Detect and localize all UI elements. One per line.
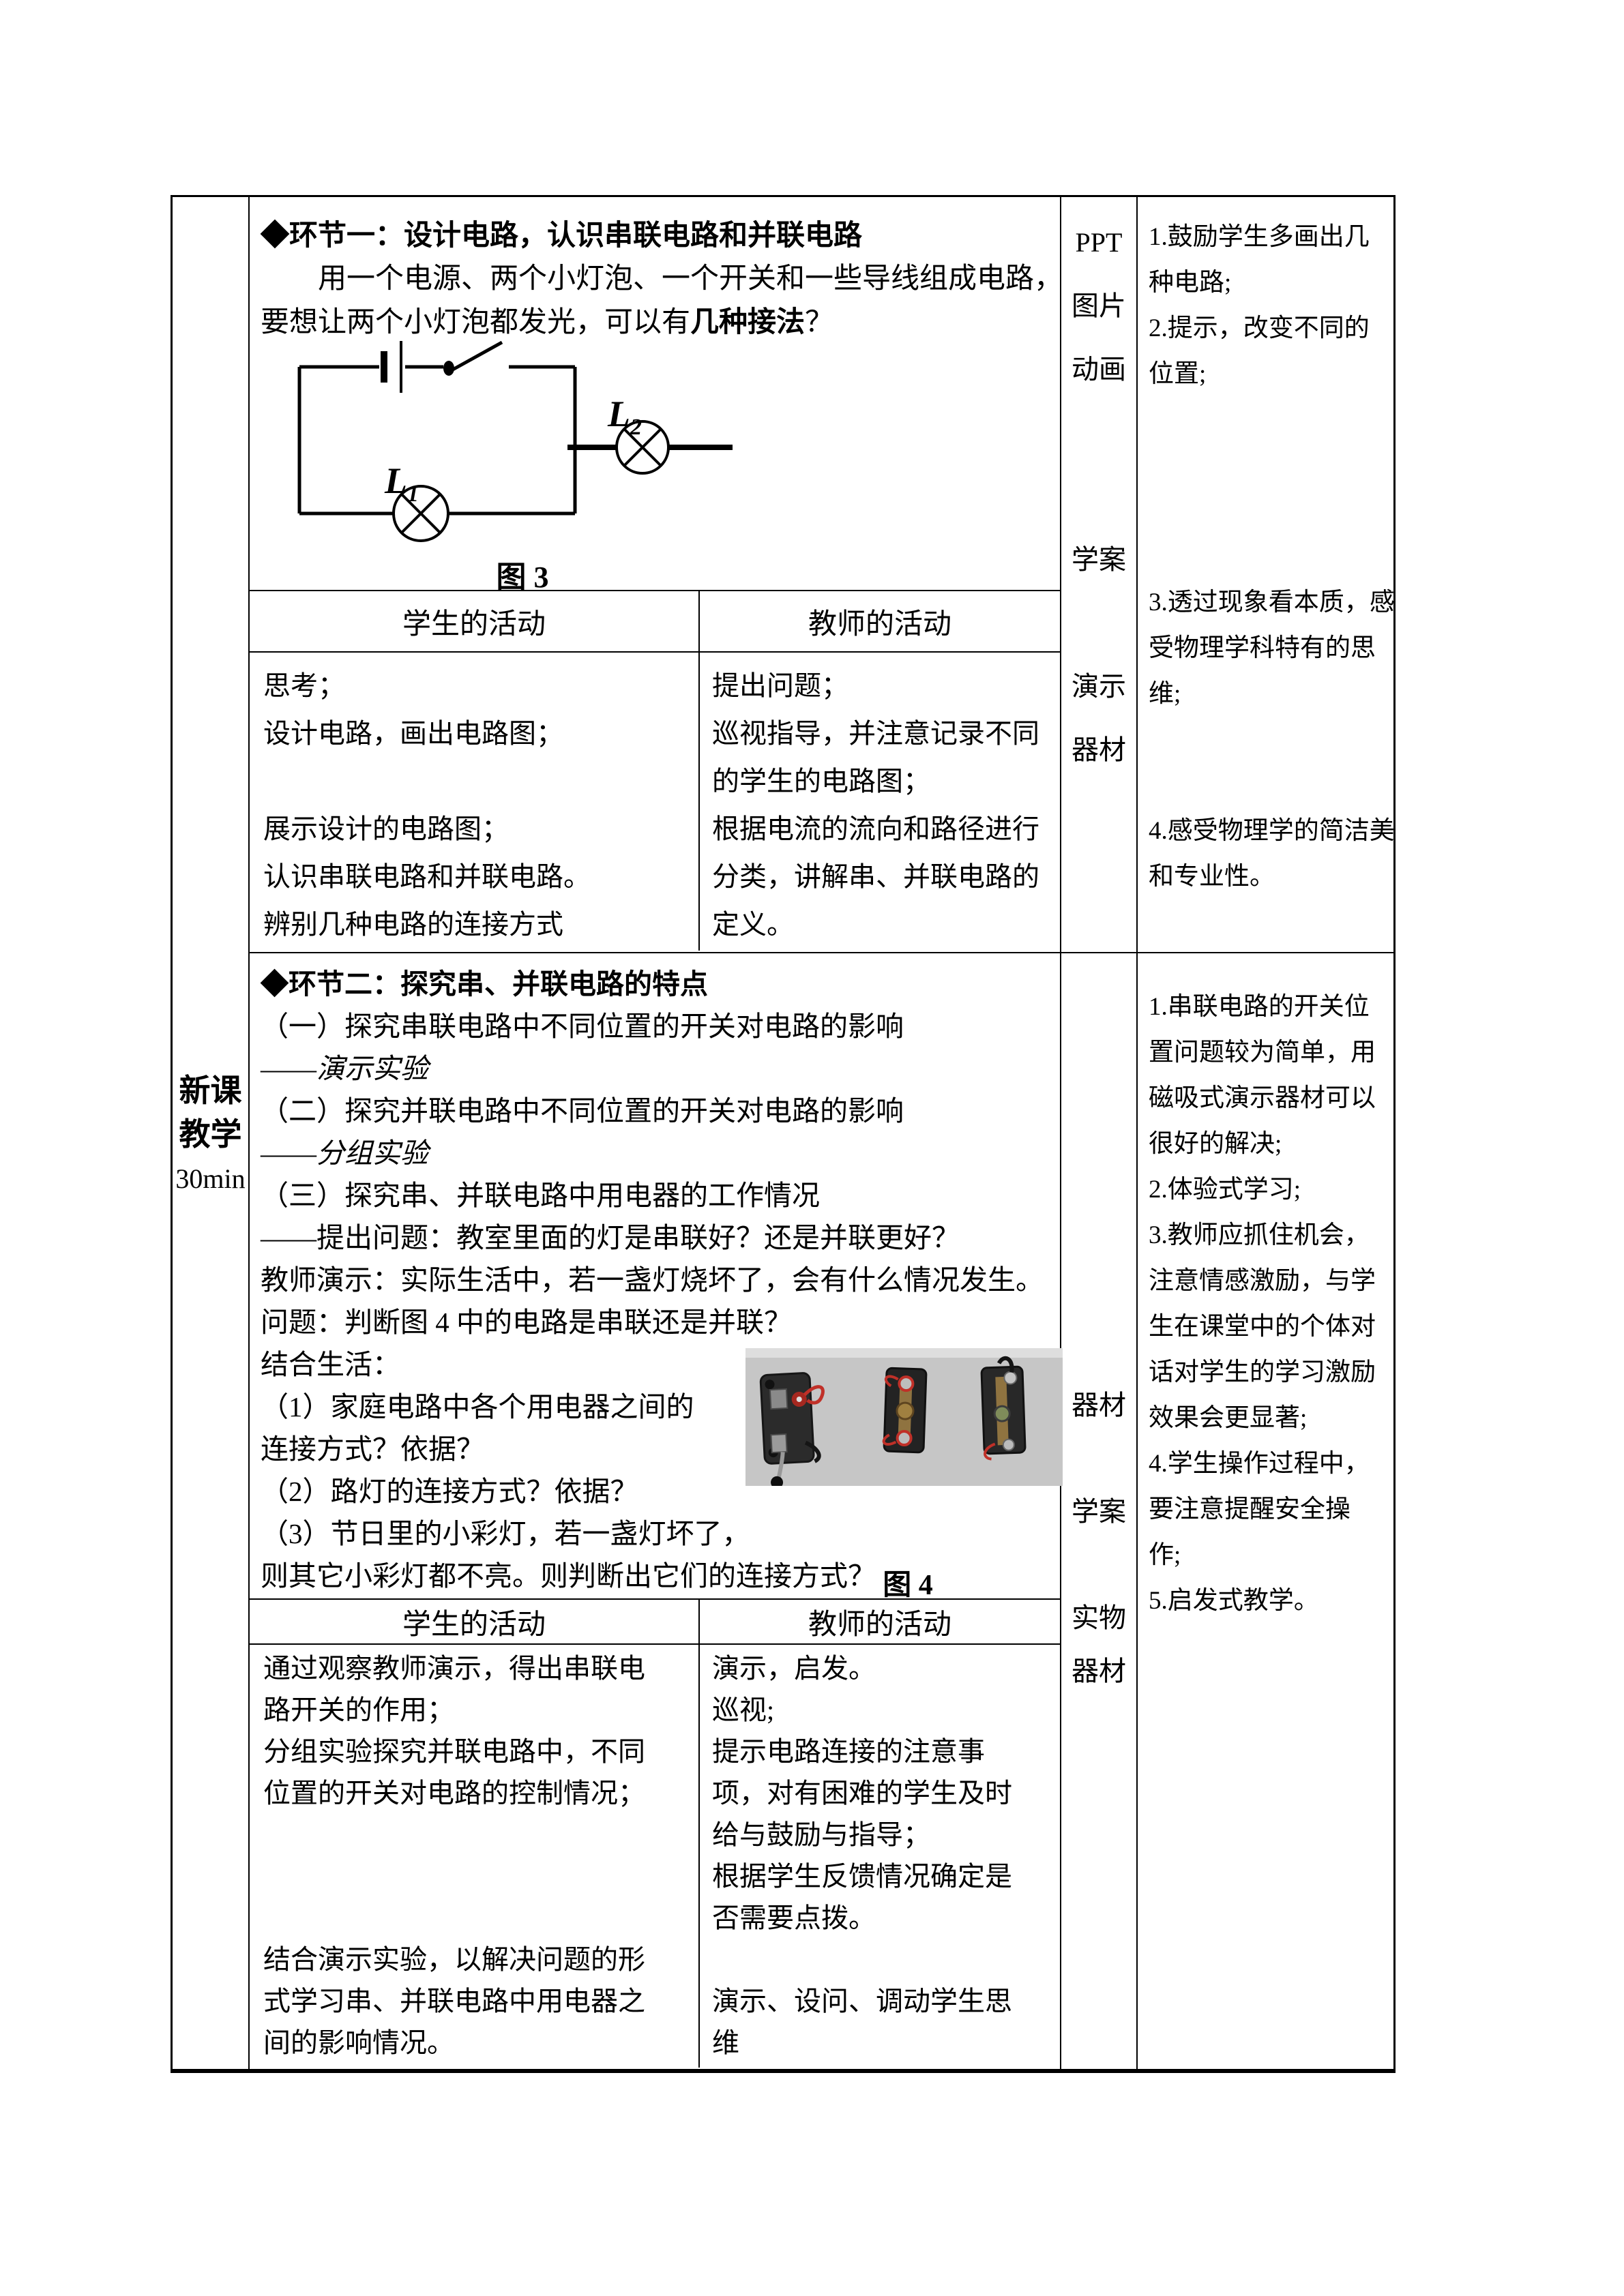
student-activities-cell: 思考；设计电路，画出电路图； 展示设计的电路图；认识串联电路和并联电路。辨别几种… (250, 653, 700, 951)
teacher-activity-line: 演示，启发。 (712, 1648, 1060, 1689)
comment-line: 2.提示，改变不同的 (1149, 305, 1393, 351)
student-activity-line (263, 758, 698, 805)
section2-content-line: ——提出问题：教室里面的灯是串联好？还是并联更好？ (261, 1217, 1044, 1259)
text-segment: （三）探究串、并联电路中用电器的工作情况 (261, 1180, 820, 1211)
teacher-activity-line: 项，对有困难的学生及时 (712, 1772, 1060, 1814)
text-segment: ——提出问题：教室里面的灯是串联好？还是并联更好？ (261, 1222, 960, 1253)
section2-content-lines: （一）探究串联电路中不同位置的开关对电路的影响——演示实验（二）探究并联电路中不… (261, 1005, 1044, 1597)
comment-line: 1.串联电路的开关位 (1149, 984, 1393, 1030)
comment-line: 话对学生的学习激励 (1149, 1350, 1393, 1395)
switch-photo-middle (883, 1368, 926, 1452)
text-segment: 问题：判断图 4 中的电路是串联还是并联？ (261, 1307, 792, 1338)
student-activities-header: 学生的活动 (250, 1600, 700, 1643)
media-label (1061, 953, 1136, 1007)
student-activity-line: 认识串联电路和并联电路。 (263, 853, 698, 901)
photo-top-light (745, 1348, 1063, 1358)
comment-line: 生在课堂中的个体对 (1149, 1304, 1393, 1350)
teacher-activity-line: 提示电路连接的注意事 (712, 1731, 1060, 1772)
comment-line: 置问题较为简单，用 (1149, 1030, 1393, 1075)
comment-line (1149, 717, 1393, 762)
text-segment: 演示实验 (316, 1053, 428, 1084)
section2-content-line: （一）探究串联电路中不同位置的开关对电路的影响 (261, 1005, 1044, 1047)
teacher-activity-line: 根据学生反馈情况确定是 (712, 1855, 1060, 1897)
comment-line: 3.透过现象看本质，感 (1149, 580, 1393, 625)
student-activities-cell: 通过观察教师演示，得出串联电路开关的作用；分组实验探究并联电路中，不同位置的开关… (250, 1645, 700, 2068)
teacher-activity-line: 的学生的电路图； (712, 758, 1060, 805)
student-activity-line: 思考； (263, 662, 698, 710)
media-label: 学案 (1061, 1485, 1136, 1538)
media-label (1061, 591, 1136, 655)
activities-body-row: 思考；设计电路，画出电路图； 展示设计的电路图；认识串联电路和并联电路。辨别几种… (250, 653, 1060, 951)
comment-line (1149, 443, 1393, 488)
media-label (1061, 1166, 1136, 1219)
comment-line: 受物理学科特有的思 (1149, 625, 1393, 671)
teacher-activities-cell: 提出问题；巡视指导，并注意记录不同的学生的电路图；根据电流的流向和路径进行分类，… (700, 653, 1060, 951)
text-segment: （二）探究并联电路中不同位置的开关对电路的影响 (261, 1095, 904, 1127)
comment-line: 磁吸式演示器材可以 (1149, 1075, 1393, 1121)
media-label: 图片 (1061, 274, 1136, 338)
comment-line (1149, 397, 1393, 443)
section1-paragraph: 用一个电源、两个小灯泡、一个开关和一些导线组成电路，要想让两个小灯泡都发光，可以… (261, 257, 1063, 344)
media-label: 实物 (1061, 1592, 1136, 1645)
media-label (1061, 1326, 1136, 1379)
section2-content-line: ——演示实验 (261, 1047, 1044, 1090)
section1-content: ◆环节一：设计电路，认识串联电路和并联电路 用一个电源、两个小灯泡、一个开关和一… (261, 213, 1063, 344)
media-label: 器材 (1061, 718, 1136, 781)
comment-line: 位置; (1149, 351, 1393, 397)
teacher-activity-line: 否需要点拨。 (712, 1897, 1060, 1939)
media-label: PPT (1061, 211, 1136, 274)
section1-activities-table: 学生的活动 教师的活动 思考；设计电路，画出电路图； 展示设计的电路图；认识串联… (250, 590, 1060, 952)
section1-comments: 1.鼓励学生多画出几种电路;2.提示，改变不同的位置; 3.透过现象看本质，感受… (1138, 197, 1393, 899)
comment-line: 作; (1149, 1532, 1393, 1578)
teacher-activity-line: 分类，讲解串、并联电路的 (712, 853, 1060, 901)
battery-icon (384, 341, 401, 393)
comment-line: 1.鼓励学生多画出几 (1149, 214, 1393, 260)
section2-activities-table: 学生的活动 教师的活动 通过观察教师演示，得出串联电路开关的作用；分组实验探究并… (250, 1598, 1060, 2069)
comment-line: 4.学生操作过程中， (1149, 1441, 1393, 1487)
student-activity-line: 分组实验探究并联电路中，不同 (263, 1731, 698, 1772)
section2-content-line: ——分组实验 (261, 1132, 1044, 1174)
media-label: 器材 (1061, 1379, 1136, 1432)
media-label (1061, 401, 1136, 464)
media-label (1061, 1272, 1136, 1326)
switch-photo-right (981, 1358, 1025, 1459)
comment-line (1149, 488, 1393, 534)
teacher-activity-line: 根据电流的流向和路径进行 (712, 805, 1060, 853)
text-segment: 几种接法 (690, 307, 805, 338)
lamp-l1-label: L1 (384, 460, 419, 507)
comment-line: 效果会更显著; (1149, 1395, 1393, 1441)
media-label (1061, 1432, 1136, 1485)
student-activity-line (263, 1814, 698, 1855)
activities-body-row: 通过观察教师演示，得出串联电路开关的作用；分组实验探究并联电路中，不同位置的开关… (250, 1645, 1060, 2068)
media-label (1061, 464, 1136, 528)
text-segment: —— (261, 1137, 316, 1169)
teacher-activity-line: 定义。 (712, 901, 1060, 949)
teacher-activity-line (712, 1939, 1060, 1980)
media-label: 器材 (1061, 1645, 1136, 1698)
section2-comments-cell: 1.串联电路的开关位置问题较为简单，用磁吸式演示器材可以很好的解决;2.体验式学… (1138, 953, 1393, 2069)
lamp-l2-icon (567, 421, 733, 473)
teacher-activity-line: 给与鼓励与指导； (712, 1814, 1060, 1855)
comment-line: 4.感受物理学的简洁美 (1149, 808, 1393, 854)
section2-content-line: （三）探究串、并联电路中用电器的工作情况 (261, 1174, 1044, 1217)
section2-content-line: 教师演示：实际生活中，若一盏灯烧坏了，会有什么情况发生。 (261, 1259, 1044, 1301)
section1-paragraph-line: 要想让两个小灯泡都发光，可以有几种接法？ (261, 301, 1063, 344)
comment-line: 3.教师应抓住机会， (1149, 1212, 1393, 1258)
section1-main-cell: ◆环节一：设计电路，认识串联电路和并联电路 用一个电源、两个小灯泡、一个开关和一… (250, 197, 1061, 953)
comment-line: 种电路; (1149, 260, 1393, 305)
comment-line (1149, 762, 1393, 808)
student-activity-line: 式学习串、并联电路中用电器之 (263, 1980, 698, 2022)
section2-content: ◆环节二：探究串、并联电路的特点 （一）探究串联电路中不同位置的开关对电路的影响… (261, 963, 1044, 1597)
comment-line: 和专业性。 (1149, 854, 1393, 899)
text-segment: （1）家庭电路中各个用电器之间的 (261, 1391, 694, 1422)
student-activity-line (263, 1855, 698, 1897)
text-segment: 结合生活： (261, 1349, 400, 1380)
teacher-activity-line: 维 (712, 2022, 1060, 2063)
section2-media-cell: 器材 学案 实物器材 (1061, 953, 1138, 2069)
figure4-photo (745, 1348, 1063, 1486)
comment-line: 维; (1149, 671, 1393, 717)
media-label: 动画 (1061, 338, 1136, 401)
section2-comments: 1.串联电路的开关位置问题较为简单，用磁吸式演示器材可以很好的解决;2.体验式学… (1138, 953, 1393, 1624)
section1-media-list: PPT图片动画 学案 演示器材 (1061, 197, 1136, 781)
section1-title: ◆环节一：设计电路，认识串联电路和并联电路 (261, 213, 1063, 257)
media-label (1061, 1007, 1136, 1060)
student-activity-line (263, 1897, 698, 1939)
text-segment: ？ (805, 307, 833, 338)
section1-paragraph-line: 用一个电源、两个小灯泡、一个开关和一些导线组成电路， (261, 257, 1063, 301)
stage-label: 新课 (179, 1069, 242, 1112)
teacher-activities-header: 教师的活动 (700, 591, 1060, 651)
teacher-activities-header: 教师的活动 (700, 1600, 1060, 1643)
student-activity-line: 路开关的作用； (263, 1689, 698, 1731)
stage-label: 30min (175, 1160, 245, 1198)
text-segment: 用一个电源、两个小灯泡、一个开关和一些导线组成电路， (261, 263, 1063, 295)
section2-main-cell: ◆环节二：探究串、并联电路的特点 （一）探究串联电路中不同位置的开关对电路的影响… (250, 953, 1061, 2069)
comment-line: 注意情感激励，与学 (1149, 1258, 1393, 1304)
comment-line (1149, 534, 1393, 580)
comment-line: 2.体验式学习; (1149, 1167, 1393, 1212)
figure3-block: L1 L2 图 3 (297, 340, 748, 596)
student-activity-line: 设计电路，画出电路图； (263, 710, 698, 758)
figure3-circuit-diagram: L1 L2 (297, 340, 748, 545)
figure4-switches-photo (745, 1348, 1063, 1486)
figure4-caption: 图 4 (850, 1562, 966, 1603)
media-label: 演示 (1061, 655, 1136, 718)
media-label (1061, 1113, 1136, 1166)
media-label: 学案 (1061, 528, 1136, 591)
section2-content-line: （3）节日里的小彩灯，若一盏灯坏了， (261, 1512, 1044, 1555)
text-segment: 要想让两个小灯泡都发光，可以有 (261, 307, 690, 338)
teacher-activity-line: 演示、设问、调动学生思 (712, 1980, 1060, 2022)
student-activity-line: 结合演示实验，以解决问题的形 (263, 1939, 698, 1980)
teacher-activity-line: 巡视; (712, 1689, 1060, 1731)
teacher-activities-cell: 演示，启发。巡视;提示电路连接的注意事项，对有困难的学生及时给与鼓励与指导；根据… (700, 1645, 1060, 2068)
student-activity-line: 辨别几种电路的连接方式 (263, 901, 698, 949)
section1-comments-cell: 1.鼓励学生多画出几种电路;2.提示，改变不同的位置; 3.透过现象看本质，感受… (1138, 197, 1393, 953)
section1-media-cell: PPT图片动画 学案 演示器材 (1061, 197, 1138, 953)
comment-line: 很好的解决; (1149, 1121, 1393, 1167)
student-activities-header: 学生的活动 (250, 591, 700, 651)
text-segment: —— (261, 1053, 316, 1084)
student-activity-line: 位置的开关对电路的控制情况； (263, 1772, 698, 1814)
stage-column-new-lesson: 新课教学30min (173, 197, 250, 2069)
text-segment: 连接方式？依据？ (261, 1433, 484, 1465)
section2-content-line: （二）探究并联电路中不同位置的开关对电路的影响 (261, 1090, 1044, 1132)
student-activity-line: 间的影响情况。 (263, 2022, 698, 2063)
teacher-activity-line: 巡视指导，并注意记录不同 (712, 710, 1060, 758)
comment-line: 要注意提醒安全操 (1149, 1487, 1393, 1532)
activities-header-row: 学生的活动 教师的活动 (250, 1600, 1060, 1645)
lamp-l2-label: L2 (607, 393, 642, 440)
section2-content-line: 问题：判断图 4 中的电路是串联还是并联？ (261, 1301, 1044, 1343)
text-segment: 则其它小彩灯都不亮。则判断出它们的连接方式？ (261, 1560, 876, 1592)
teacher-activity-line: 提出问题； (712, 662, 1060, 710)
section2-title: ◆环节二：探究串、并联电路的特点 (261, 963, 1044, 1005)
stage-label: 教学 (179, 1112, 242, 1156)
media-label (1061, 1538, 1136, 1592)
text-segment: （一）探究串联电路中不同位置的开关对电路的影响 (261, 1011, 904, 1042)
section2-media-list: 器材 学案 实物器材 (1061, 953, 1136, 1698)
comment-line: 5.启发式教学。 (1149, 1578, 1393, 1624)
text-segment: 教师演示：实际生活中，若一盏灯烧坏了，会有什么情况发生。 (261, 1264, 1044, 1296)
switch-icon (443, 342, 502, 376)
media-label (1061, 1060, 1136, 1113)
student-activity-line: 通过观察教师演示，得出串联电 (263, 1648, 698, 1689)
lesson-plan-table: 新课教学30min ◆环节一：设计电路，认识串联电路和并联电路 用一个电源、两个… (171, 195, 1396, 2073)
activities-header-row: 学生的活动 教师的活动 (250, 591, 1060, 653)
text-segment: 分组实验 (316, 1137, 428, 1169)
media-label (1061, 1219, 1136, 1272)
text-segment: （3）节日里的小彩灯，若一盏灯坏了， (261, 1518, 750, 1549)
student-activity-line: 展示设计的电路图； (263, 805, 698, 853)
lesson-plan-page: 新课教学30min ◆环节一：设计电路，认识串联电路和并联电路 用一个电源、两个… (0, 0, 1624, 2296)
text-segment: （2）路灯的连接方式？依据？ (261, 1476, 638, 1507)
